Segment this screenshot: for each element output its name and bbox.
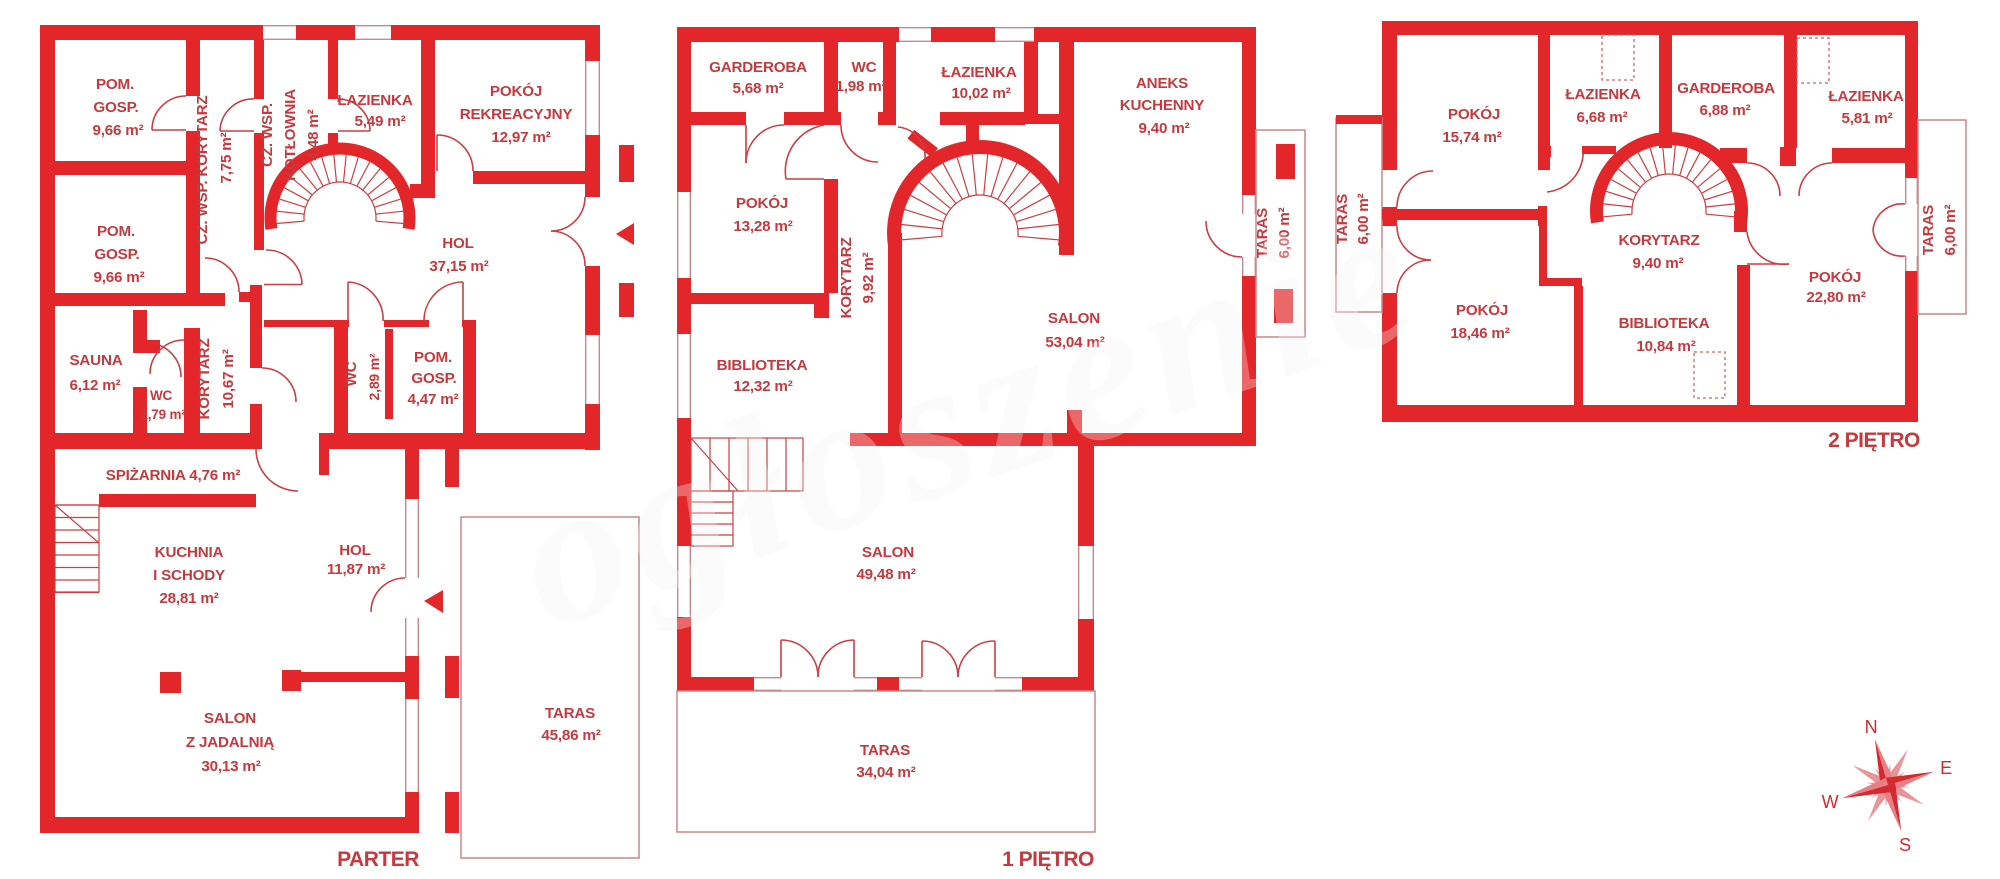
svg-text:6,12 m²: 6,12 m² [70,377,121,394]
svg-text:10,84 m²: 10,84 m² [1636,338,1695,355]
svg-text:WC: WC [343,361,360,386]
svg-text:9,92 m²: 9,92 m² [860,252,877,303]
svg-text:WC: WC [852,59,877,76]
svg-text:POKÓJ: POKÓJ [1456,301,1508,319]
svg-text:ŁAZIENKA: ŁAZIENKA [337,92,412,109]
svg-text:9,66 m²: 9,66 m² [94,269,145,286]
svg-text:49,48 m²: 49,48 m² [856,566,915,583]
svg-text:9,40 m²: 9,40 m² [1139,120,1190,137]
svg-text:N: N [1865,717,1878,737]
svg-text:SALON: SALON [204,710,256,727]
svg-text:30,13 m²: 30,13 m² [201,758,260,775]
svg-text:KORYTARZ: KORYTARZ [196,338,213,419]
svg-text:E: E [1940,758,1952,778]
svg-text:POKÓJ: POKÓJ [736,194,788,212]
svg-text:12,97 m²: 12,97 m² [491,129,550,146]
svg-text:34,04 m²: 34,04 m² [856,764,915,781]
svg-text:2 PIĘTRO: 2 PIĘTRO [1828,429,1920,452]
svg-text:POKÓJ: POKÓJ [490,82,542,100]
svg-text:6,68 m²: 6,68 m² [1577,109,1628,126]
svg-text:10,67 m²: 10,67 m² [220,349,237,408]
svg-text:GOSP.: GOSP. [94,246,139,263]
svg-text:5,68 m²: 5,68 m² [733,80,784,97]
svg-text:18,46 m²: 18,46 m² [1450,325,1509,342]
svg-text:REKREACYJNY: REKREACYJNY [460,106,573,123]
svg-text:KOTŁOWNIA: KOTŁOWNIA [282,89,299,181]
svg-text:9,66 m²: 9,66 m² [93,122,144,139]
svg-text:POKÓJ: POKÓJ [1448,105,1500,123]
svg-text:HOL: HOL [339,542,370,559]
svg-text:TARAS: TARAS [860,742,910,759]
svg-text:28,81 m²: 28,81 m² [159,590,218,607]
svg-text:GOSP.: GOSP. [411,370,456,387]
svg-text:5,81 m²: 5,81 m² [1842,110,1893,127]
svg-text:ŁAZIENKA: ŁAZIENKA [941,64,1016,81]
svg-text:1,79 m²: 1,79 m² [140,407,186,422]
svg-text:POKÓJ: POKÓJ [1809,268,1861,286]
svg-text:TARAS: TARAS [545,705,595,722]
svg-text:9,40 m²: 9,40 m² [1633,255,1684,272]
svg-text:13,28 m²: 13,28 m² [733,218,792,235]
svg-text:KUCHNIA: KUCHNIA [155,544,224,561]
svg-text:11,87 m²: 11,87 m² [327,561,385,578]
svg-text:S: S [1899,835,1911,855]
svg-text:I SCHODY: I SCHODY [153,567,225,584]
svg-text:POM.: POM. [97,223,135,240]
svg-text:6,88 m²: 6,88 m² [1700,102,1751,119]
svg-text:ŁAZIENKA: ŁAZIENKA [1828,88,1903,105]
svg-text:KUCHENNY: KUCHENNY [1120,97,1205,114]
svg-text:BIBLIOTEKA: BIBLIOTEKA [1619,315,1710,332]
svg-text:GOSP.: GOSP. [93,99,138,116]
svg-text:15,74 m²: 15,74 m² [1442,129,1501,146]
svg-text:W: W [1822,792,1839,812]
svg-text:CZ. WSP.: CZ. WSP. [259,103,276,167]
svg-text:SAUNA: SAUNA [69,352,122,369]
svg-text:KORYTARZ: KORYTARZ [1618,232,1699,249]
svg-text:CZ. WSP. KORYTARZ: CZ. WSP. KORYTARZ [194,95,211,244]
svg-text:Z JADALNIĄ: Z JADALNIĄ [186,734,275,751]
svg-text:POM.: POM. [96,76,134,93]
svg-text:HOL: HOL [442,235,473,252]
svg-text:TARAS: TARAS [1920,205,1937,255]
svg-text:KORYTARZ: KORYTARZ [838,237,855,318]
svg-text:ANEKS: ANEKS [1136,75,1188,92]
svg-text:5,49 m²: 5,49 m² [355,113,406,130]
svg-text:4,47 m²: 4,47 m² [408,391,459,408]
svg-text:22,80 m²: 22,80 m² [1806,289,1865,306]
svg-text:10,02 m²: 10,02 m² [951,85,1010,102]
svg-text:45,86 m²: 45,86 m² [541,727,600,744]
svg-text:ŁAZIENKA: ŁAZIENKA [1565,86,1640,103]
svg-text:7,75 m²: 7,75 m² [218,132,235,183]
svg-text:1,98 m²: 1,98 m² [836,78,887,95]
svg-text:1 PIĘTRO: 1 PIĘTRO [1002,848,1094,871]
svg-text:2,89 m²: 2,89 m² [366,353,382,400]
svg-text:4,48 m²: 4,48 m² [305,109,322,160]
svg-text:GARDEROBA: GARDEROBA [1677,80,1775,97]
svg-text:WC: WC [150,388,173,403]
svg-text:37,15 m²: 37,15 m² [429,258,488,275]
svg-text:PARTER: PARTER [337,848,419,871]
svg-text:POM.: POM. [414,349,452,366]
svg-text:6,00 m²: 6,00 m² [1942,204,1959,255]
svg-text:GARDEROBA: GARDEROBA [709,59,807,76]
svg-text:SPIŻARNIA 4,76 m²: SPIŻARNIA 4,76 m² [106,467,241,484]
